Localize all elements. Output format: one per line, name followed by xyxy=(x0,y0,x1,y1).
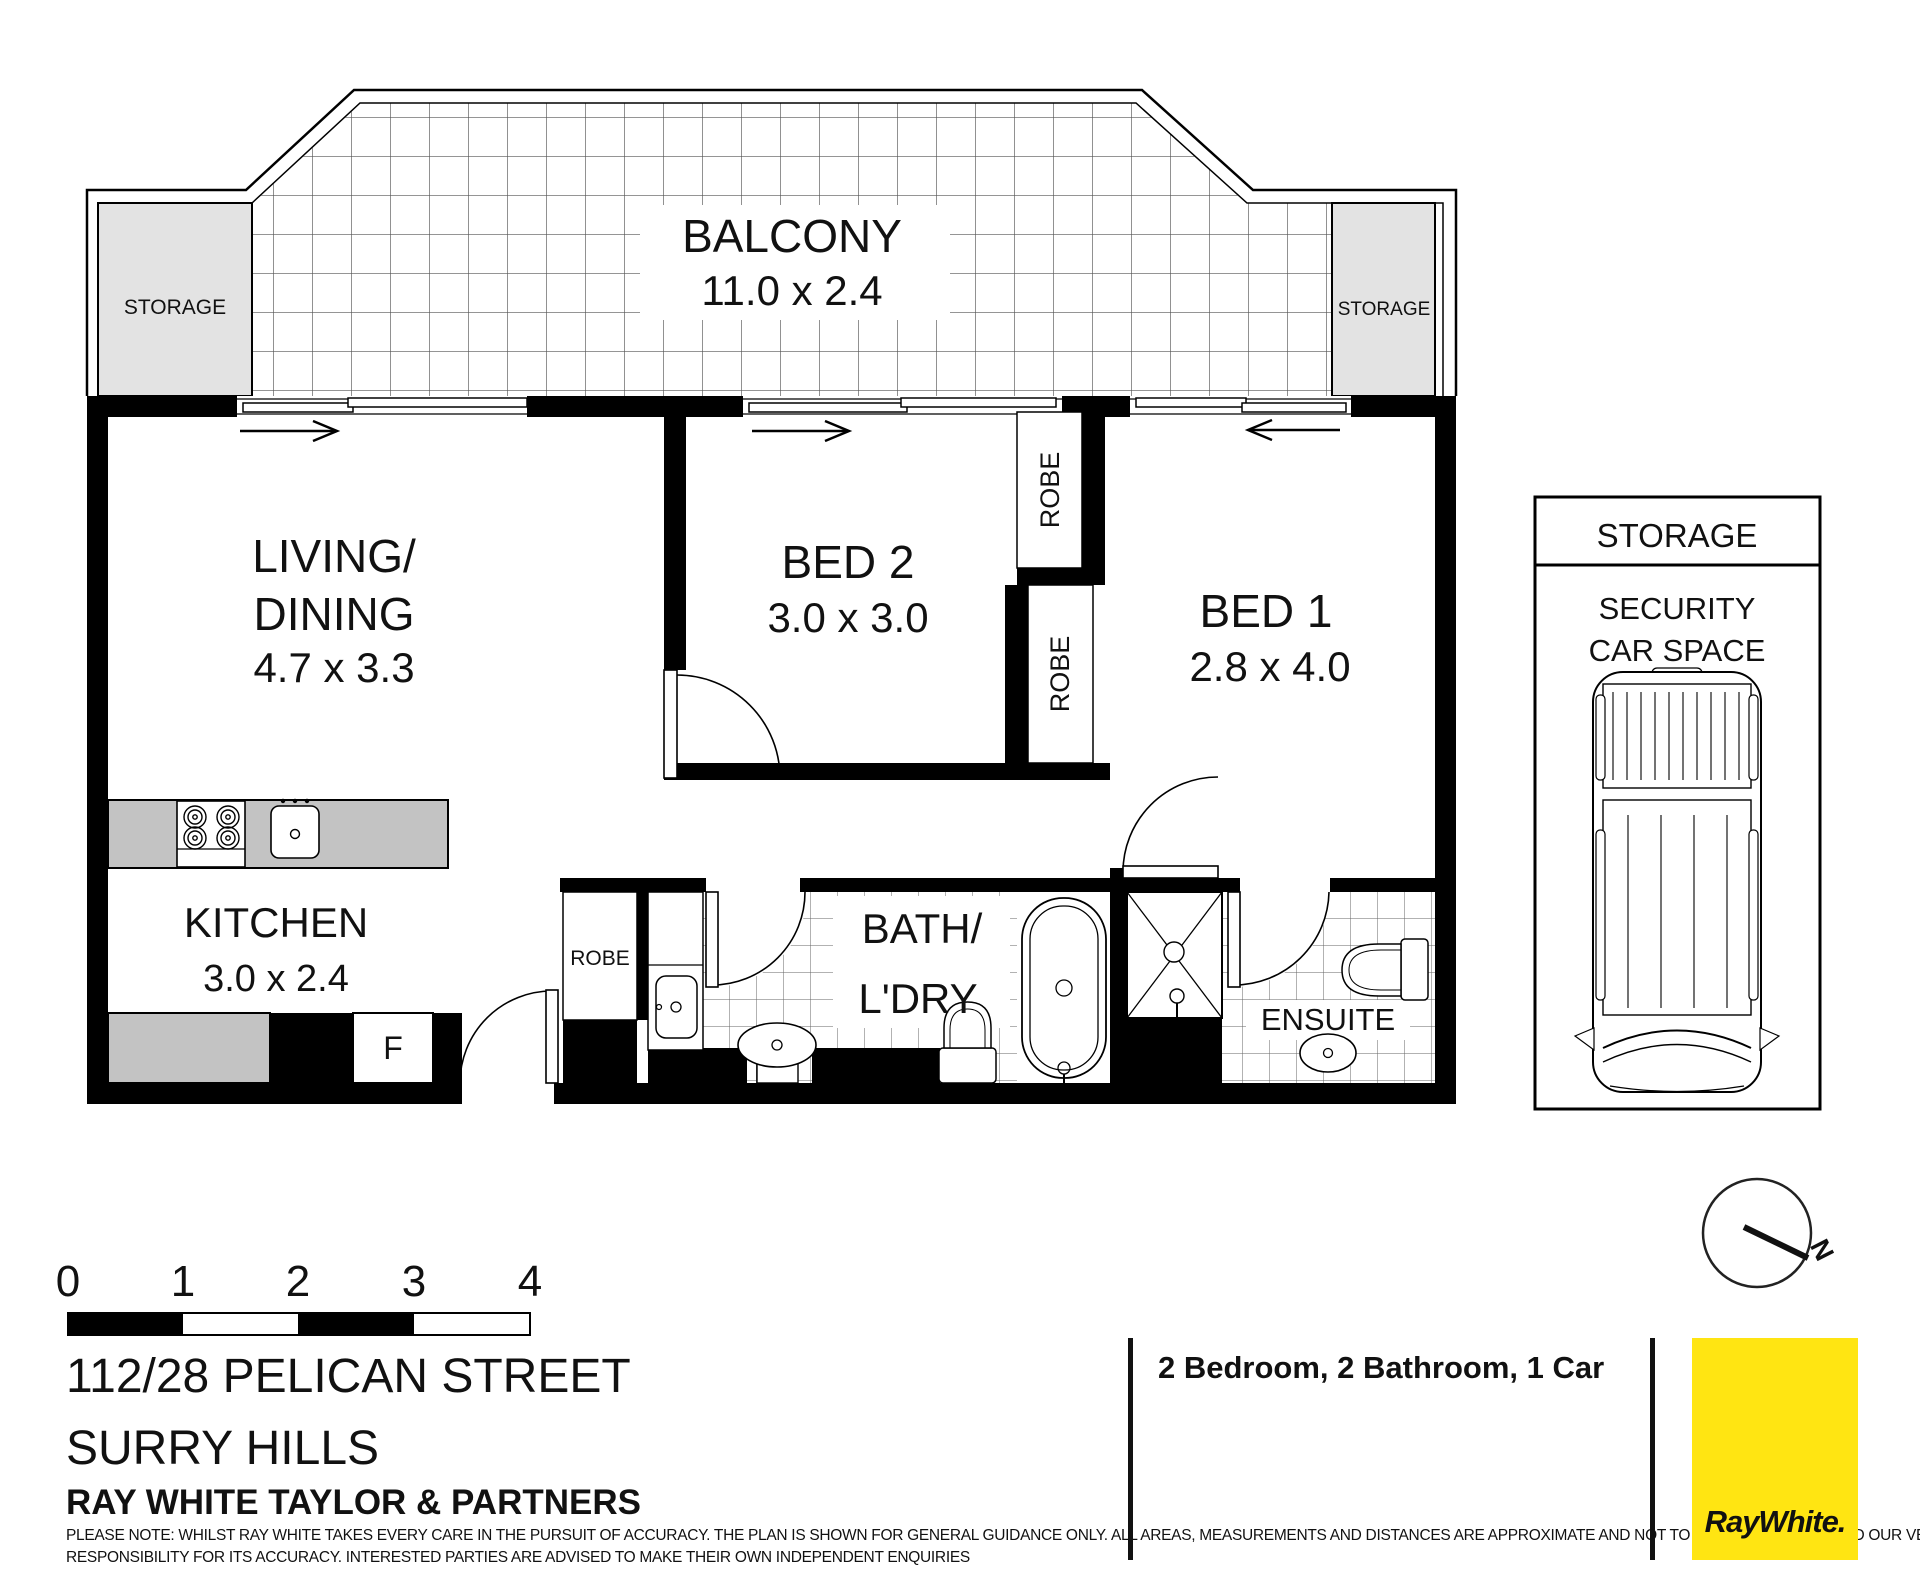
bed2-door-arc xyxy=(677,675,780,778)
scale-0: 0 xyxy=(56,1257,80,1306)
disclaimer-line2: RESPONSIBILITY FOR ITS ACCURACY. INTERES… xyxy=(66,1549,970,1566)
robe-hall-label: ROBE xyxy=(570,947,630,970)
scale-seg-1 xyxy=(68,1313,183,1335)
kitchen-label: KITCHEN xyxy=(184,899,368,946)
car-space-panel: STORAGE SECURITY CAR SPACE xyxy=(1535,497,1820,1109)
entry-door-arc xyxy=(460,991,552,1083)
slider-arrows xyxy=(240,420,1340,441)
balcony: STORAGE STORAGE BALCONY 11.0 x 2.4 xyxy=(87,90,1456,396)
scale-1: 1 xyxy=(171,1257,195,1306)
scale-2: 2 xyxy=(286,1257,310,1306)
balcony-label: BALCONY xyxy=(682,210,902,262)
scale-seg-2 xyxy=(298,1313,414,1335)
bed1-door-arc xyxy=(1123,777,1218,872)
ensuite-door-leaf xyxy=(1228,892,1240,987)
ensuite-basin xyxy=(1300,1034,1356,1072)
floorplan-page: STORAGE STORAGE BALCONY 11.0 x 2.4 xyxy=(0,0,1920,1575)
fridge-label: F xyxy=(383,1030,403,1066)
bed1-label: BED 1 xyxy=(1200,585,1333,637)
compass: N xyxy=(1703,1179,1840,1287)
vanity xyxy=(648,892,703,1050)
ensuite-label: ENSUITE xyxy=(1261,1002,1395,1037)
storage-right-label: STORAGE xyxy=(1338,299,1431,320)
scale-3: 3 xyxy=(402,1257,426,1306)
disclaimer-line1: PLEASE NOTE: WHILST RAY WHITE TAKES EVER… xyxy=(66,1527,1920,1544)
divider-left xyxy=(1128,1338,1133,1560)
bath-door-leaf xyxy=(706,892,718,987)
scale-bar: 0 1 2 3 4 xyxy=(56,1257,542,1335)
bed2-door-leaf xyxy=(664,670,677,778)
floorplan-canvas: STORAGE STORAGE BALCONY 11.0 x 2.4 xyxy=(0,0,1920,1575)
raywhite-wordmark: RayWhite. xyxy=(1705,1504,1846,1539)
kitchen-sink xyxy=(271,799,319,858)
scale-4: 4 xyxy=(518,1257,542,1306)
robe-bed1-label: ROBE xyxy=(1045,636,1075,713)
ensuite-toilet xyxy=(1342,939,1428,1000)
kitchen-dims: 3.0 x 2.4 xyxy=(203,958,349,1000)
bathtub xyxy=(1017,892,1110,1083)
property-summary: 2 Bedroom, 2 Bathroom, 1 Car xyxy=(1158,1350,1604,1385)
bed2-dims: 3.0 x 3.0 xyxy=(767,594,928,641)
address-line1: 112/28 PELICAN STREET xyxy=(66,1350,631,1403)
slider-bed2 xyxy=(743,396,1062,417)
address-block: 112/28 PELICAN STREET SURRY HILLS RAY WH… xyxy=(66,1350,1920,1566)
agency-name: RAY WHITE TAYLOR & PARTNERS xyxy=(66,1483,641,1522)
compass-needle xyxy=(1744,1227,1808,1258)
car-space-line2: CAR SPACE xyxy=(1589,633,1766,668)
car-icon xyxy=(1575,668,1779,1092)
storage-left-label: STORAGE xyxy=(124,296,226,319)
divider-right xyxy=(1650,1338,1655,1560)
bath-label-2: L'DRY xyxy=(858,975,977,1022)
living-label-1: LIVING/ xyxy=(252,530,416,582)
bed2-label: BED 2 xyxy=(782,536,915,588)
slider-living xyxy=(237,396,527,417)
bed1-door-leaf xyxy=(1123,866,1218,878)
stove xyxy=(177,801,245,867)
slider-bed1 xyxy=(1130,396,1351,417)
address-line2: SURRY HILLS xyxy=(66,1422,379,1475)
entry-door-leaf xyxy=(546,990,558,1083)
bed1-dims: 2.8 x 4.0 xyxy=(1189,643,1350,690)
sliding-doors xyxy=(237,396,1351,441)
shower xyxy=(1127,892,1222,1018)
robe-bed2-label: ROBE xyxy=(1035,452,1065,529)
car-space-line1: SECURITY xyxy=(1599,591,1756,626)
living-dims: 4.7 x 3.3 xyxy=(253,644,414,691)
living-label-2: DINING xyxy=(254,588,415,640)
balcony-dims: 11.0 x 2.4 xyxy=(701,267,882,314)
car-space-header: STORAGE xyxy=(1597,517,1758,554)
kitchen-counter-bottom xyxy=(108,1013,270,1083)
bath-label-1: BATH/ xyxy=(862,905,983,952)
